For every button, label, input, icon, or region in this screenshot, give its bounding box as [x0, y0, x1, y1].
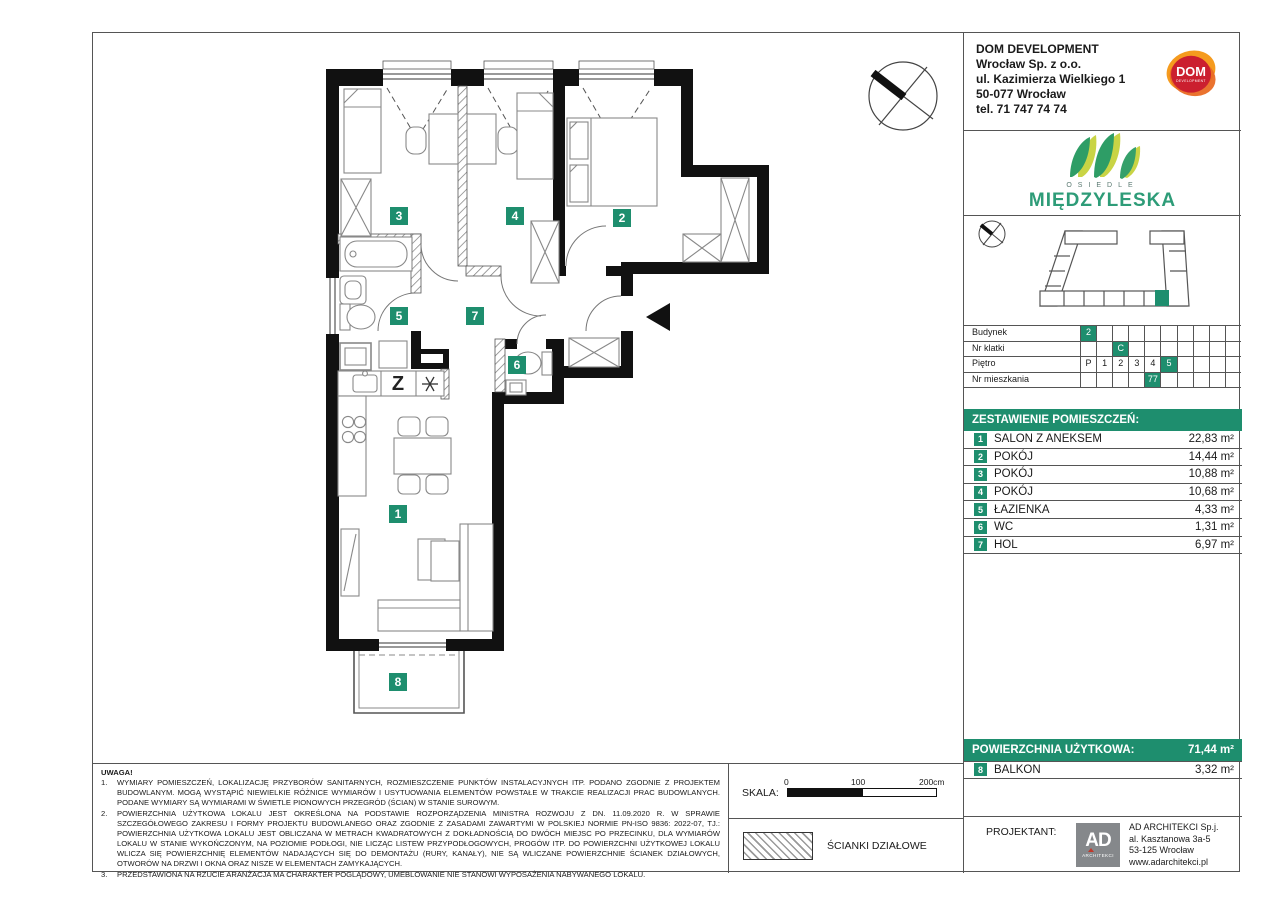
desk-room4 [467, 114, 518, 164]
unit-info-cell [1128, 342, 1144, 357]
unit-info-label: Piętro [964, 357, 1080, 372]
company-info: DOM DEVELOPMENT Wrocław Sp. z o.o. ul. K… [964, 33, 1241, 131]
room-row: 4POKÓJ10,68 m² [964, 484, 1242, 502]
unit-info-cell [1225, 326, 1241, 341]
room-area: 10,68 m² [1189, 486, 1234, 498]
estate-logo-top: OSIEDLE [964, 182, 1241, 189]
double-bed-room2 [567, 118, 657, 206]
room-area: 4,33 m² [1195, 504, 1234, 516]
site-compass-icon [979, 221, 1005, 247]
unit-info-cell: 2 [1112, 357, 1128, 372]
scale-tick-100: 100 [851, 777, 865, 787]
unit-info-cell [1144, 342, 1160, 357]
balcony-row: 8 BALKON 3,32 m² [964, 761, 1242, 779]
note-number: 3. [101, 870, 117, 880]
bed-room3 [344, 89, 381, 173]
wardrobe-room3 [341, 179, 371, 236]
total-area-label: POWIERZCHNIA UŻYTKOWA: [972, 744, 1134, 756]
note-number: 1. [101, 778, 117, 809]
room-label-5: 5 [390, 307, 408, 325]
designer-label: PROJEKTANT: [986, 826, 1056, 838]
fridge [379, 341, 407, 368]
wardrobe-room2-tall [721, 178, 749, 262]
room-row: 3POKÓJ10,88 m² [964, 466, 1242, 484]
room-badge: 4 [974, 486, 987, 499]
unit-info-row: Budynek2 [964, 326, 1241, 342]
room-label-8: 8 [389, 673, 407, 691]
unit-info-row: Nr mieszkania77 [964, 373, 1241, 389]
note-text: PRZEDSTAWIONA NA RZUCIE ARANŻACJA MA CHA… [117, 870, 720, 880]
unit-info-label: Nr mieszkania [964, 373, 1080, 388]
ad-logo-subtext: ARCHITEKCI [1082, 853, 1114, 858]
room-name: POKÓJ [994, 486, 1189, 498]
dom-development-logo: DOM DEVELOPMENT [1155, 39, 1227, 111]
room-area: 10,88 m² [1189, 468, 1234, 480]
unit-info-cells: 77 [1080, 373, 1241, 388]
room-label-4: 4 [506, 207, 524, 225]
note-item: 2.POWIERZCHNIA UŻYTKOWA LOKALU JEST OKRE… [101, 809, 720, 870]
wall-niche [421, 354, 443, 363]
unit-info-cells: C [1080, 342, 1241, 357]
room-row: 7HOL6,97 m² [964, 537, 1242, 555]
room-name: POKÓJ [994, 468, 1189, 480]
balcony-area: 3,32 m² [1195, 764, 1234, 776]
svg-text:3: 3 [396, 209, 403, 223]
wardrobe-room2-low [683, 234, 721, 262]
unit-info-cell [1209, 357, 1225, 372]
svg-text:2: 2 [619, 211, 626, 225]
note-item: 1.WYMIARY POMIESZCZEŃ, LOKALIZACJĘ PRZYB… [101, 778, 720, 809]
unit-info-cell [1177, 357, 1193, 372]
partition-wall-swatch [743, 832, 813, 860]
svg-text:DOM: DOM [1176, 64, 1206, 79]
window-bathroom [326, 278, 339, 334]
note-text: POWIERZCHNIA UŻYTKOWA LOKALU JEST OKREŚL… [117, 809, 720, 870]
unit-info-cell: 4 [1144, 357, 1160, 372]
unit-info-cell [1128, 326, 1144, 341]
rooms-header-label: ZESTAWIENIE POMIESZCZEŃ: [972, 414, 1139, 426]
designer-block: PROJEKTANT: AD ARCHITEKCI AD ARCHITEKCI … [964, 816, 1242, 873]
room-badge: 7 [974, 538, 987, 551]
notes-list: 1.WYMIARY POMIESZCZEŃ, LOKALIZACJĘ PRZYB… [101, 778, 720, 880]
entrance-arrow-icon [646, 303, 670, 331]
svg-text:5: 5 [396, 309, 403, 323]
designer-line: 53-125 Wrocław [1129, 845, 1219, 857]
room-badge: 2 [974, 450, 987, 463]
scale-bar-filled [787, 788, 862, 797]
room-area: 14,44 m² [1189, 451, 1234, 463]
svg-text:DEVELOPMENT: DEVELOPMENT [1176, 79, 1206, 83]
room-area: 22,83 m² [1189, 433, 1234, 445]
kitchen-counter-left [338, 396, 366, 496]
unit-info-cell [1193, 326, 1209, 341]
partition-wall-label: ŚCIANKI DZIAŁOWE [827, 840, 927, 852]
room-name: HOL [994, 539, 1195, 551]
room-label-1: 1 [389, 505, 407, 523]
wc-sink [506, 380, 526, 395]
unit-info-cell: C [1112, 342, 1128, 357]
unit-info-cell [1128, 373, 1144, 388]
unit-info-cell [1177, 373, 1193, 388]
bed-room4 [517, 93, 553, 179]
balcony [354, 651, 464, 713]
scale-panel: SKALA: 0 100 200cm [728, 763, 963, 818]
rooms-header: ZESTAWIENIE POMIESZCZEŃ: [964, 409, 1242, 431]
room-label-2: 2 [613, 209, 631, 227]
unit-info-cell [1144, 326, 1160, 341]
floor-plan-sheet: Z 1 2 3 4 5 6 7 [0, 0, 1273, 900]
wardrobe-room4 [531, 221, 559, 283]
room-name: WC [994, 521, 1195, 533]
unit-info-cell [1096, 342, 1112, 357]
rooms-list: 1SALON Z ANEKSEM22,83 m²2POKÓJ14,44 m²3P… [964, 431, 1242, 554]
unit-info-cell [1209, 373, 1225, 388]
room-name: SALON Z ANEKSEM [994, 433, 1189, 445]
room-area: 6,97 m² [1195, 539, 1234, 551]
unit-info-table: Budynek2Nr klatkiCPiętroP12345Nr mieszka… [964, 326, 1241, 388]
svg-text:6: 6 [514, 358, 521, 372]
bathroom-sink [340, 276, 366, 304]
unit-info-cell [1096, 373, 1112, 388]
site-plan [964, 216, 1241, 326]
estate-leaves-icon [1048, 133, 1158, 179]
room-row: 2POKÓJ14,44 m² [964, 449, 1242, 467]
bathtub [340, 237, 412, 271]
room-badge: 1 [974, 433, 987, 446]
room-area: 1,31 m² [1195, 521, 1234, 533]
unit-info-cell [1225, 342, 1241, 357]
kitchen-sink-symbol: Z [392, 373, 404, 395]
unit-info-cell [1112, 373, 1128, 388]
bathroom-toilet [340, 304, 375, 330]
sheet-frame: Z 1 2 3 4 5 6 7 [92, 32, 1240, 872]
svg-text:8: 8 [395, 675, 402, 689]
unit-info-cell: 77 [1144, 373, 1160, 388]
unit-info-cell [1193, 342, 1209, 357]
room-badge: 5 [974, 503, 987, 516]
scale-tick-200: 200cm [919, 777, 945, 787]
scale-bar-empty [862, 788, 937, 797]
room-name: ŁAZIENKA [994, 504, 1195, 516]
room-badge: 6 [974, 521, 987, 534]
note-number: 2. [101, 809, 117, 870]
note-item: 3.PRZEDSTAWIONA NA RZUCIE ARANŻACJA MA C… [101, 870, 720, 880]
desk-room3 [406, 114, 458, 164]
svg-text:7: 7 [472, 309, 479, 323]
unit-info-cell [1193, 373, 1209, 388]
designer-line: al. Kasztanowa 3a-5 [1129, 834, 1219, 846]
unit-info-cell [1177, 342, 1193, 357]
total-area-bar: POWIERZCHNIA UŻYTKOWA: 71,44 m² [964, 739, 1242, 761]
unit-info-row: Nr klatkiC [964, 342, 1241, 358]
notes-title: UWAGA! [101, 768, 720, 777]
note-text: WYMIARY POMIESZCZEŃ, LOKALIZACJĘ PRZYBOR… [117, 778, 720, 809]
unit-info-cell [1096, 326, 1112, 341]
balcony-name: BALKON [994, 764, 1195, 776]
unit-info-cell: 1 [1096, 357, 1112, 372]
unit-info-cell: 3 [1128, 357, 1144, 372]
notes-panel: UWAGA! 1.WYMIARY POMIESZCZEŃ, LOKALIZACJ… [93, 763, 728, 873]
floor-plan-drawing: Z 1 2 3 4 5 6 7 [93, 33, 963, 763]
unit-info-cells: 2 [1080, 326, 1241, 341]
unit-highlight [1155, 290, 1169, 306]
unit-info-cell [1225, 357, 1241, 372]
unit-info-row: PiętroP12345 [964, 357, 1241, 373]
title-block-column: DOM DEVELOPMENT Wrocław Sp. z o.o. ul. K… [963, 33, 1241, 873]
unit-info-cell: P [1080, 357, 1096, 372]
unit-info-cell [1209, 326, 1225, 341]
tv-sideboard [341, 529, 359, 596]
unit-info-cell [1209, 342, 1225, 357]
legend-panel: ŚCIANKI DZIAŁOWE [728, 818, 963, 873]
room-label-6: 6 [508, 356, 526, 374]
svg-text:1: 1 [395, 507, 402, 521]
room-row: 6WC1,31 m² [964, 519, 1242, 537]
scale-label: SKALA: [742, 787, 779, 799]
unit-info-cell [1112, 326, 1128, 341]
unit-info-cells: P12345 [1080, 357, 1241, 372]
unit-info-cell [1160, 373, 1176, 388]
dining-table [394, 417, 451, 494]
unit-info-cell: 2 [1080, 326, 1096, 341]
designer-address: AD ARCHITEKCI Sp.j. al. Kasztanowa 3a-5 … [1129, 822, 1219, 868]
scale-tick-0: 0 [784, 777, 789, 787]
estate-logo-name: MIĘDZYLESKA [964, 190, 1241, 212]
unit-info-cell [1160, 326, 1176, 341]
unit-info-cell: 5 [1160, 357, 1176, 372]
unit-info-cell [1193, 357, 1209, 372]
washing-machine [340, 343, 371, 370]
designer-link: www.adarchitekci.pl [1129, 857, 1219, 869]
unit-info-cell [1177, 326, 1193, 341]
estate-logo-block: OSIEDLE MIĘDZYLESKA [964, 131, 1241, 216]
unit-info-cell [1080, 342, 1096, 357]
balcony-door [379, 639, 446, 651]
room-row: 1SALON Z ANEKSEM22,83 m² [964, 431, 1242, 449]
unit-info-cell [1160, 342, 1176, 357]
designer-line: AD ARCHITEKCI Sp.j. [1129, 822, 1219, 834]
room-name: POKÓJ [994, 451, 1189, 463]
unit-info-label: Nr klatki [964, 342, 1080, 357]
unit-info-cell [1080, 373, 1096, 388]
ad-logo-triangle-icon [1088, 848, 1094, 852]
unit-info-label: Budynek [964, 326, 1080, 341]
svg-text:4: 4 [512, 209, 519, 223]
total-area-value: 71,44 m² [1188, 744, 1234, 756]
wardrobe-hall [569, 338, 619, 367]
unit-info-cell [1225, 373, 1241, 388]
room-label-3: 3 [390, 207, 408, 225]
room-badge: 3 [974, 468, 987, 481]
north-compass-icon [869, 62, 937, 130]
room-label-7: 7 [466, 307, 484, 325]
ad-architekci-logo: AD ARCHITEKCI [1076, 823, 1120, 867]
balcony-badge: 8 [974, 763, 987, 776]
room-row: 5ŁAZIENKA4,33 m² [964, 501, 1242, 519]
